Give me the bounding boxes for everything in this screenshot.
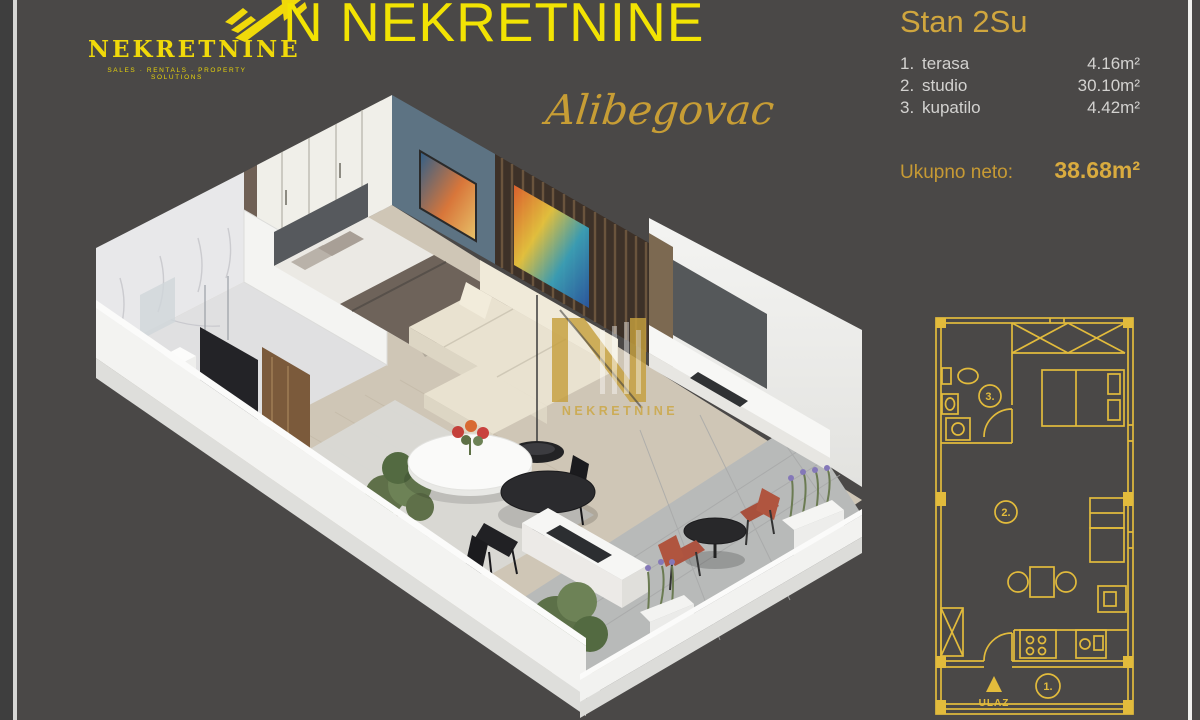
- plan-bed: [1042, 370, 1124, 426]
- room-row: 1. terasa 4.16m²: [900, 53, 1140, 75]
- total-value: 38.68m²: [1054, 157, 1140, 184]
- plan-walls: [936, 318, 1133, 714]
- room-label: studio: [922, 75, 1078, 97]
- left-edge-line: [13, 0, 17, 720]
- plan-kitchen-row: [1014, 630, 1128, 661]
- room-area: 4.42m²: [1087, 97, 1140, 119]
- room-area: 30.10m²: [1078, 75, 1140, 97]
- right-edge-line: [1188, 0, 1192, 720]
- room-label: terasa: [922, 53, 1087, 75]
- wall-blocks: [936, 318, 1133, 714]
- entrance-arrow-icon: [986, 676, 1002, 692]
- entry-door: [984, 633, 1012, 661]
- room-number: 3.: [900, 97, 922, 119]
- plan-closet: [941, 608, 963, 656]
- main-title: N NEKRETNINE: [283, 0, 705, 54]
- plan-kitchen-column: [1090, 498, 1126, 612]
- room-area: 4.16m²: [1087, 53, 1140, 75]
- brand-logo: NEKRETNINE SALES · RENTALS · PROPERTY SO…: [88, 0, 266, 81]
- apartment-name: Stan 2Su: [900, 4, 1140, 40]
- plan-dining: [1008, 567, 1076, 597]
- room-row: 2. studio 30.10m²: [900, 75, 1140, 97]
- brand-tagline: SALES · RENTALS · PROPERTY SOLUTIONS: [88, 67, 266, 81]
- flyer-canvas: 3. 2. 1. ULAZ NEKRETNINE SALES · RENTALS…: [0, 0, 1200, 720]
- room-label: kupatilo: [922, 97, 1087, 119]
- toilet-icon: [942, 368, 978, 384]
- apartment-info-panel: Stan 2Su 1. terasa 4.16m² 2. studio 30.1…: [900, 0, 1140, 184]
- room-number: 2.: [900, 75, 922, 97]
- floor-plan-2d: 3. 2. 1. ULAZ: [930, 310, 1142, 720]
- watermark-text: NEKRETNINE: [530, 404, 710, 418]
- plan-label-bathroom: 3.: [985, 391, 994, 403]
- room-list: 1. terasa 4.16m² 2. studio 30.10m² 3. ku…: [900, 53, 1140, 119]
- entrance-label: ULAZ: [979, 698, 1010, 709]
- plan-label-studio: 2.: [1001, 507, 1010, 519]
- project-name: Alibegovac: [532, 86, 787, 134]
- bathroom-door: [984, 409, 1012, 437]
- dining-table: [501, 471, 595, 513]
- washer-icon: [946, 418, 970, 440]
- terrace-wall: [941, 661, 1128, 667]
- plan-wardrobe: [1012, 323, 1125, 353]
- sink-icon: [942, 394, 958, 414]
- bistro-table: [684, 518, 746, 544]
- brand-logo-text: NEKRETNINE: [88, 36, 266, 63]
- total-row: Ukupno neto: 38.68m²: [900, 157, 1140, 184]
- plan-label-terrace: 1.: [1043, 681, 1052, 693]
- room-row: 3. kupatilo 4.42m²: [900, 97, 1140, 119]
- left-edge-strip: [0, 0, 13, 720]
- room-number: 1.: [900, 53, 922, 75]
- total-label: Ukupno neto:: [900, 162, 1013, 184]
